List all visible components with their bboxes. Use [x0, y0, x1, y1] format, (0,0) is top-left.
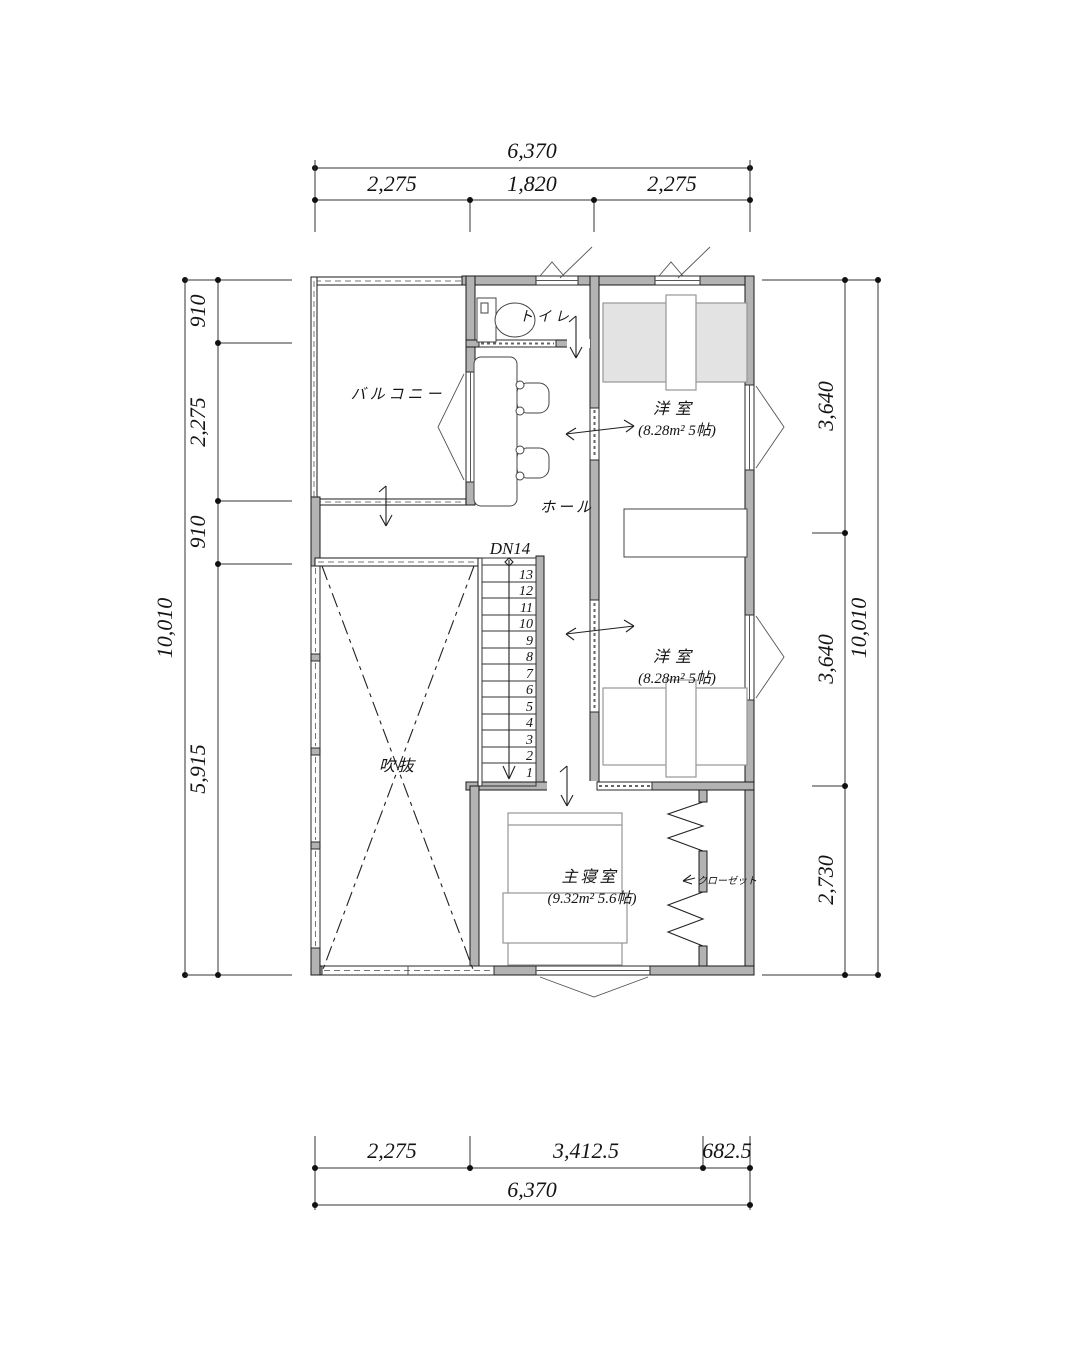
- dim-left-overall: 10,010: [152, 598, 177, 659]
- western-room-2-label: 洋室: [653, 648, 697, 666]
- dim-bottom-seg-1: 2,275: [367, 1138, 417, 1163]
- master-bedroom-label: 主寝室: [561, 868, 618, 886]
- floor-plan-page: 6,370 2,275 1,820 2,275 910 2,275 910 5,…: [0, 0, 1080, 1350]
- hall-label: ホール: [540, 499, 594, 516]
- dim-bottom-seg-2: 3,412.5: [552, 1138, 619, 1163]
- dim-top-overall: 6,370: [507, 138, 557, 163]
- stairs-label: DN14: [489, 539, 531, 558]
- stair-number: 3: [525, 733, 533, 748]
- stair-number: 1: [526, 766, 533, 781]
- dimension-top: 6,370 2,275 1,820 2,275: [312, 138, 753, 232]
- stair-number: 13: [519, 568, 533, 583]
- dim-bottom-overall: 6,370: [507, 1177, 557, 1202]
- hall-counter: [474, 357, 549, 506]
- stair-number: 2: [526, 749, 533, 764]
- bed-master: [503, 813, 627, 965]
- dimension-left: 910 2,275 910 5,915 10,010: [152, 277, 292, 978]
- stair-number: 9: [526, 634, 533, 649]
- stair-number: 11: [520, 601, 533, 616]
- western-room-1-label: 洋室: [653, 400, 697, 418]
- balcony-label: バルコニー: [351, 386, 446, 403]
- bed-western-room-2: [603, 680, 747, 777]
- dim-right-overall: 10,010: [846, 598, 871, 659]
- dim-left-seg-2: 2,275: [185, 397, 210, 447]
- dim-left-seg-3: 910: [185, 516, 210, 549]
- stair-number: 4: [526, 716, 533, 731]
- western-room-2-area: (8.28m² 5帖): [638, 670, 716, 687]
- dim-left-seg-1: 910: [185, 295, 210, 328]
- staircase: DN14 13 12 11 10 9 8 7 6 5 4 3 2 1: [478, 539, 536, 786]
- floor-plan-drawing: 6,370 2,275 1,820 2,275 910 2,275 910 5,…: [0, 0, 1080, 1350]
- void-railing: [315, 558, 478, 566]
- dim-left-seg-4: 5,915: [185, 744, 210, 794]
- dim-right-seg-1: 3,640: [813, 381, 838, 432]
- stair-number: 6: [526, 683, 533, 698]
- stair-number: 7: [526, 667, 534, 682]
- dim-bottom-seg-3: 682.5: [702, 1138, 752, 1163]
- toilet-label: トイレ: [519, 308, 573, 324]
- desk-between-rooms: [624, 509, 747, 557]
- dim-right-seg-3: 2,730: [813, 855, 838, 905]
- dimension-bottom: 2,275 3,412.5 682.5 6,370: [312, 1136, 753, 1210]
- western-room-1-area: (8.28m² 5帖): [638, 422, 716, 439]
- dim-top-seg-3: 2,275: [647, 171, 697, 196]
- dimension-right: 3,640 3,640 2,730 10,010: [762, 277, 881, 978]
- stair-number: 12: [519, 584, 533, 599]
- stair-number: 10: [519, 617, 533, 632]
- bed-western-room-1: [603, 295, 747, 390]
- closet-label: クローゼット: [697, 875, 757, 887]
- void-label: 吹抜: [379, 757, 417, 775]
- stair-number: 5: [526, 700, 533, 715]
- dim-top-seg-2: 1,820: [507, 171, 557, 196]
- dim-top-seg-1: 2,275: [367, 171, 417, 196]
- stair-number: 8: [526, 650, 533, 665]
- master-bedroom-area: (9.32m² 5.6帖): [547, 890, 636, 907]
- dim-right-seg-2: 3,640: [813, 634, 838, 685]
